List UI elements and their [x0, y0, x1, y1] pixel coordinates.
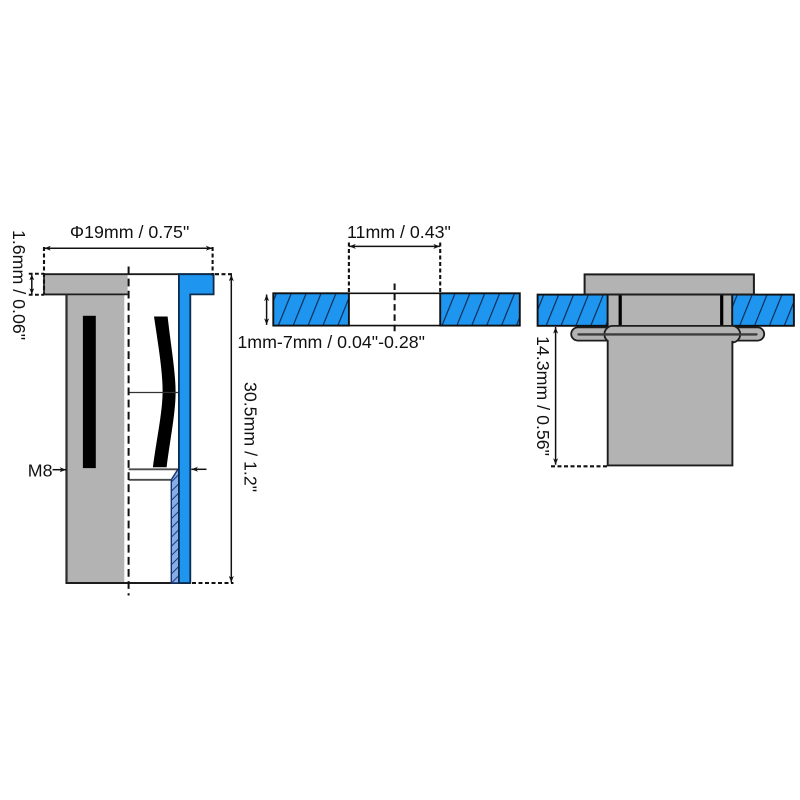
- svg-text:Φ19mm / 0.75": Φ19mm / 0.75": [70, 222, 189, 242]
- svg-text:1.6mm / 0.06": 1.6mm / 0.06": [9, 230, 29, 340]
- svg-text:1mm-7mm / 0.04"-0.28": 1mm-7mm / 0.04"-0.28": [237, 332, 425, 352]
- svg-text:14.3mm / 0.56": 14.3mm / 0.56": [533, 336, 553, 456]
- svg-text:M8: M8: [28, 460, 53, 480]
- svg-text:11mm / 0.43": 11mm / 0.43": [347, 222, 451, 242]
- svg-text:30.5mm / 1.2": 30.5mm / 1.2": [240, 382, 260, 492]
